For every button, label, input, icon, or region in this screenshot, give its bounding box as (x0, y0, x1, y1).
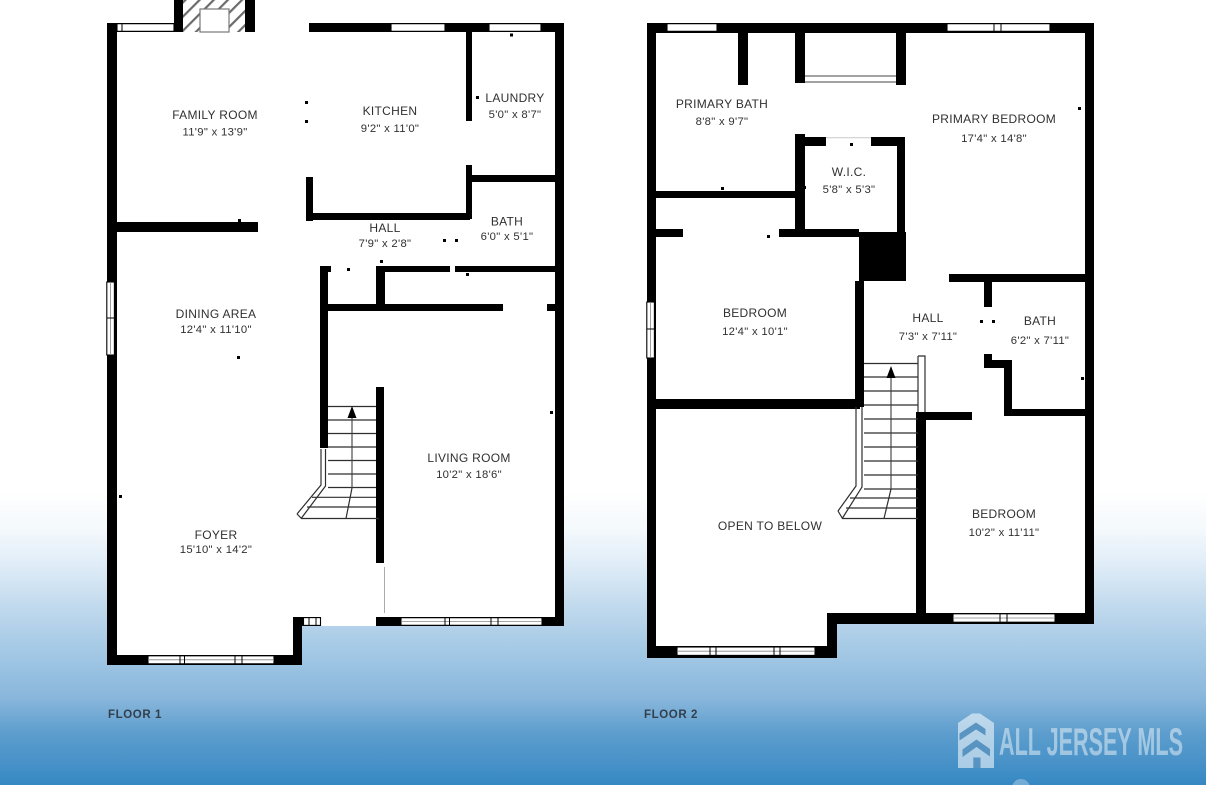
svg-text:6'2" x 7'11": 6'2" x 7'11" (1011, 335, 1069, 347)
svg-text:10'2" x 18'6": 10'2" x 18'6" (436, 469, 502, 481)
svg-text:BEDROOM: BEDROOM (972, 507, 1036, 521)
svg-text:7'9" x 2'8": 7'9" x 2'8" (359, 238, 412, 250)
svg-text:W.I.C.: W.I.C. (832, 165, 866, 179)
svg-text:FAMILY ROOM: FAMILY ROOM (172, 108, 258, 122)
svg-text:6'0" x 5'1": 6'0" x 5'1" (481, 231, 534, 243)
svg-text:5'0" x 8'7": 5'0" x 8'7" (489, 109, 542, 121)
svg-text:5'8" x 5'3": 5'8" x 5'3" (823, 184, 876, 196)
svg-text:BATH: BATH (491, 215, 523, 229)
svg-text:OPEN TO BELOW: OPEN TO BELOW (718, 519, 823, 533)
svg-text:FLOOR 1: FLOOR 1 (108, 709, 162, 721)
svg-text:LAUNDRY: LAUNDRY (485, 91, 544, 105)
svg-text:DINING AREA: DINING AREA (176, 307, 257, 321)
svg-text:KITCHEN: KITCHEN (363, 104, 418, 118)
svg-text:10'2" x 11'11": 10'2" x 11'11" (969, 527, 1040, 539)
svg-text:FLOOR 2: FLOOR 2 (644, 709, 698, 721)
svg-text:PRIMARY BATH: PRIMARY BATH (676, 97, 768, 111)
svg-text:9'2" x 11'0": 9'2" x 11'0" (361, 123, 419, 135)
svg-text:HALL: HALL (912, 311, 943, 325)
svg-text:LIVING ROOM: LIVING ROOM (427, 451, 510, 465)
svg-text:BEDROOM: BEDROOM (723, 306, 787, 320)
svg-text:8'8" x 9'7": 8'8" x 9'7" (696, 116, 749, 128)
svg-text:11'9" x 13'9": 11'9" x 13'9" (182, 127, 247, 139)
svg-text:ALL JERSEY MLS: ALL JERSEY MLS (999, 721, 1183, 764)
svg-text:15'10" x 14'2": 15'10" x 14'2" (180, 544, 252, 556)
svg-text:17'4" x 14'8": 17'4" x 14'8" (961, 133, 1027, 145)
svg-text:FOYER: FOYER (195, 528, 238, 542)
svg-text:BATH: BATH (1024, 314, 1056, 328)
svg-text:12'4" x 11'10": 12'4" x 11'10" (180, 324, 252, 336)
svg-text:12'4" x 10'1": 12'4" x 10'1" (722, 326, 788, 338)
svg-text:HALL: HALL (369, 221, 400, 235)
svg-text:PRIMARY BEDROOM: PRIMARY BEDROOM (932, 112, 1056, 126)
svg-text:7'3" x 7'11": 7'3" x 7'11" (899, 331, 957, 343)
